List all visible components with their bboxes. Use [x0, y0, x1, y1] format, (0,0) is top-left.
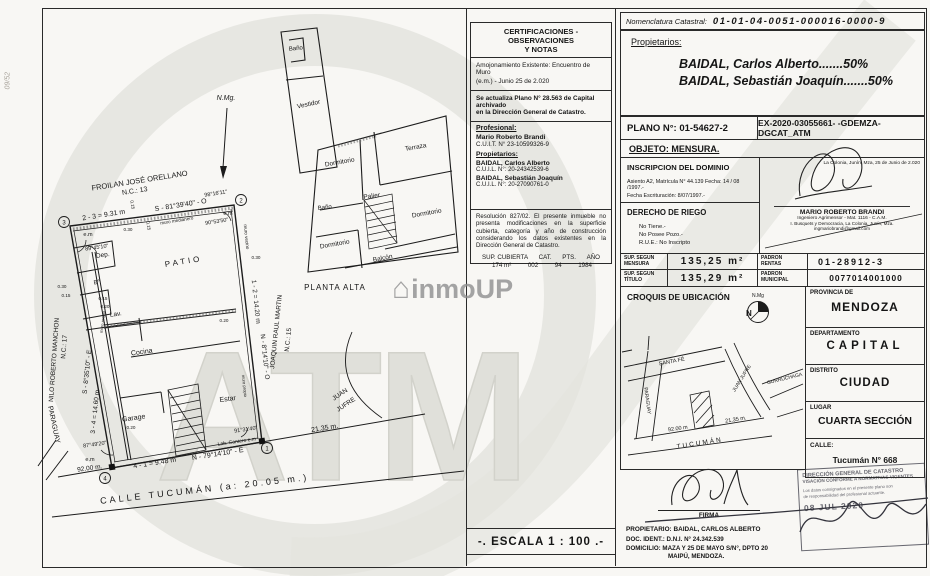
- padron-municipal-value: 0077014001000: [829, 273, 903, 283]
- expediente-cell: EX-2020-03055661- -GDEMZA-DGCAT_ATM: [757, 116, 925, 140]
- firma-label: FIRMA: [658, 512, 760, 519]
- surveyor-email: ingmariobrandi@gmail.com: [764, 226, 920, 231]
- sup-titulo-value-cell: 135,29 m²: [667, 269, 758, 287]
- plano-number: PLANO N°: 01-54627-2: [627, 123, 728, 134]
- inscripcion-title: INSCRIPCION DEL DOMINIO: [627, 163, 753, 172]
- propietario-line3: DOMICILIO: MAZA Y 25 DE MAYO S/N°, DPTO …: [626, 545, 768, 552]
- provincia-label: PROVINCIA DE: [810, 290, 920, 296]
- anio-value: 1984: [578, 262, 592, 269]
- owner1-share: BAIDAL, Carlos Alberto.......50%: [679, 57, 914, 71]
- owner2-cuil: C.U.I.L. N°: 20-27090761-0: [476, 182, 606, 188]
- padron-municipal-label2: MUNICIPAL: [761, 277, 788, 283]
- nomenclatura-label: Nomenclatura Catastral:: [626, 17, 707, 26]
- surveyor-name: MARIO ROBERTO BRANDI: [764, 209, 920, 216]
- profesional-label: Profesional:: [476, 125, 606, 132]
- distrito-value: CIUDAD: [810, 377, 920, 389]
- sup-mensura-label-cell: SUP. SEGUN MENSURA: [620, 253, 668, 270]
- profesional-cuit: C.U.I.T. N° 23-10599326-9: [476, 141, 606, 148]
- note-actualiza-2: en la Dirección General de Catastro.: [476, 109, 606, 116]
- profesional-name: Mario Roberto Brandi: [476, 134, 606, 141]
- lugar-value: CUARTA SECCIÓN: [810, 415, 920, 427]
- padron-municipal-label-cell: PADRON MUNICIPAL: [757, 269, 808, 287]
- pts-header: PTS.: [562, 254, 576, 261]
- departamento-box: DEPARTAMENTO CAPITAL: [805, 327, 925, 365]
- cat-header: CAT.: [539, 254, 552, 261]
- padron-rentas-label2: RENTAS: [761, 261, 781, 267]
- sup-mensura-value-cell: 135,25 m²: [667, 253, 758, 270]
- scale-box: -. ESCALA 1 : 100 .-: [466, 528, 616, 555]
- scale-label: -. ESCALA 1 : 100 .-: [478, 536, 604, 548]
- owner1-name: BAIDAL, Carlos Alberto: [476, 160, 606, 167]
- riego-line3: R.U.E.: No Inscripto: [639, 240, 753, 246]
- note-actualiza-1: Se actualiza Plano N° 28.563 de Capital …: [476, 95, 606, 109]
- scanned-survey-sheet: ATM 09/52 CERTIFICACIONES - OBSERVACIONE…: [0, 0, 930, 576]
- inscripcion-cell: INSCRIPCION DEL DOMINIO Asiento A2, Matr…: [620, 157, 760, 203]
- distrito-box: DISTRITO CIUDAD: [805, 364, 925, 402]
- resolution-note: Resolución 827/02. El presente inmueble …: [476, 213, 606, 249]
- owners-box-label: Propietarios:: [631, 37, 914, 47]
- expediente-number: EX-2020-03055661- -GDEMZA-DGCAT_ATM: [758, 118, 924, 138]
- anio-header: AÑO: [587, 254, 600, 261]
- padron-rentas-value-cell: 01-28912-3: [807, 253, 925, 270]
- riego-line2: No Posee Pozo.-: [639, 232, 753, 238]
- owner2-name: BAIDAL, Sebastián Joaquín: [476, 175, 606, 182]
- cat-value: 002: [528, 262, 538, 269]
- note-amojonamiento-2: (e.m.) - Junio 25 de 2.020: [476, 78, 606, 85]
- owner2-share: BAIDAL, Sebastián Joaquín.......50%: [679, 74, 914, 88]
- distrito-label: DISTRITO: [810, 368, 920, 374]
- sup-mensura-value: 135,25 m²: [681, 256, 745, 267]
- padron-rentas-label-cell: PADRON RENTAS: [757, 253, 808, 270]
- croquis-title: CROQUIS DE UBICACIÓN: [627, 292, 805, 302]
- sup-cubierta-value: 174 m²: [492, 262, 511, 269]
- notes-title-line1: CERTIFICACIONES - OBSERVACIONES: [471, 27, 611, 45]
- owners-box: Propietarios: BAIDAL, Carlos Alberto....…: [620, 30, 925, 116]
- sup-titulo-value: 135,29 m²: [681, 273, 745, 284]
- calle-label: CALLE:: [810, 442, 920, 449]
- departamento-value: CAPITAL: [810, 340, 920, 352]
- sup-cubierta-header: SUP. CUBIERTA: [482, 254, 528, 261]
- riego-line1: No Tiene.-: [639, 224, 753, 230]
- sup-titulo-label-cell: SUP. SEGUN TÍTULO: [620, 269, 668, 287]
- objeto-label: OBJETO: MENSURA.: [629, 144, 719, 154]
- lugar-box: LUGAR CUARTA SECCIÓN: [805, 401, 925, 439]
- owner1-cuil: C.U.I.L. N°: 20-24342539-6: [476, 167, 606, 173]
- inscripcion-line2: Fecha Escrituración: 8/07/1997.-: [627, 193, 753, 199]
- owners-label: Propietarios:: [476, 151, 606, 158]
- propietario-line4: MAIPÚ, MENDOZA.: [668, 553, 724, 560]
- surveyor-cell: La Colonia, Junín, Mza, 25 de Junio de 2…: [759, 157, 925, 254]
- notes-title-line2: Y NOTAS: [471, 45, 611, 54]
- calle-box: CALLE: Tucumán N° 668: [805, 438, 925, 478]
- derecho-riego-title: DERECHO DE RIEGO: [627, 208, 753, 217]
- inscripcion-line1: Asiento A2, Matrícula N° 44.139 Fecha: 1…: [627, 179, 753, 191]
- calle-value: Tucumán N° 668: [810, 455, 920, 465]
- croquis-box: CROQUIS DE UBICACIÓN: [620, 286, 806, 470]
- pts-value: 94: [555, 262, 562, 269]
- propietario-line1: PROPIETARIO: BAIDAL, CARLOS ALBERTO: [626, 526, 760, 533]
- place-date: La Colonia, Junín, Mza, 25 de Junio de 2…: [764, 161, 920, 166]
- derecho-riego-cell: DERECHO DE RIEGO No Tiene.- No Posee Poz…: [620, 202, 760, 254]
- provincia-box: PROVINCIA DE MENDOZA: [805, 286, 925, 328]
- lugar-label: LUGAR: [810, 405, 920, 411]
- objeto-row: OBJETO: MENSURA.: [620, 139, 925, 158]
- nomenclatura-row: Nomenclatura Catastral: 01-01-04-0051-00…: [620, 12, 925, 30]
- departamento-label: DEPARTAMENTO: [810, 331, 920, 337]
- nomenclatura-value: 01-01-04-0051-000016-0000-9: [713, 16, 886, 27]
- sup-mensura-label2: MENSURA: [624, 261, 649, 267]
- margin-note: 09/52: [5, 42, 12, 90]
- propietario-line2: DOC. IDENT.: D.N.I. N° 24.342.539: [626, 536, 724, 543]
- provincia-value: MENDOZA: [810, 300, 920, 314]
- note-amojonamiento-1: Amojonamiento Existente: Encuentro de Mu…: [476, 62, 606, 76]
- notes-box: CERTIFICACIONES - OBSERVACIONES Y NOTAS …: [470, 22, 612, 264]
- plano-cell: PLANO N°: 01-54627-2: [620, 116, 758, 140]
- padron-municipal-value-cell: 0077014001000: [807, 269, 925, 287]
- firma-area: FIRMA PROPIETARIO: BAIDAL, CARLOS ALBERT…: [620, 470, 806, 562]
- sup-titulo-label2: TÍTULO: [624, 277, 642, 283]
- padron-rentas-value: 01-28912-3: [818, 257, 884, 267]
